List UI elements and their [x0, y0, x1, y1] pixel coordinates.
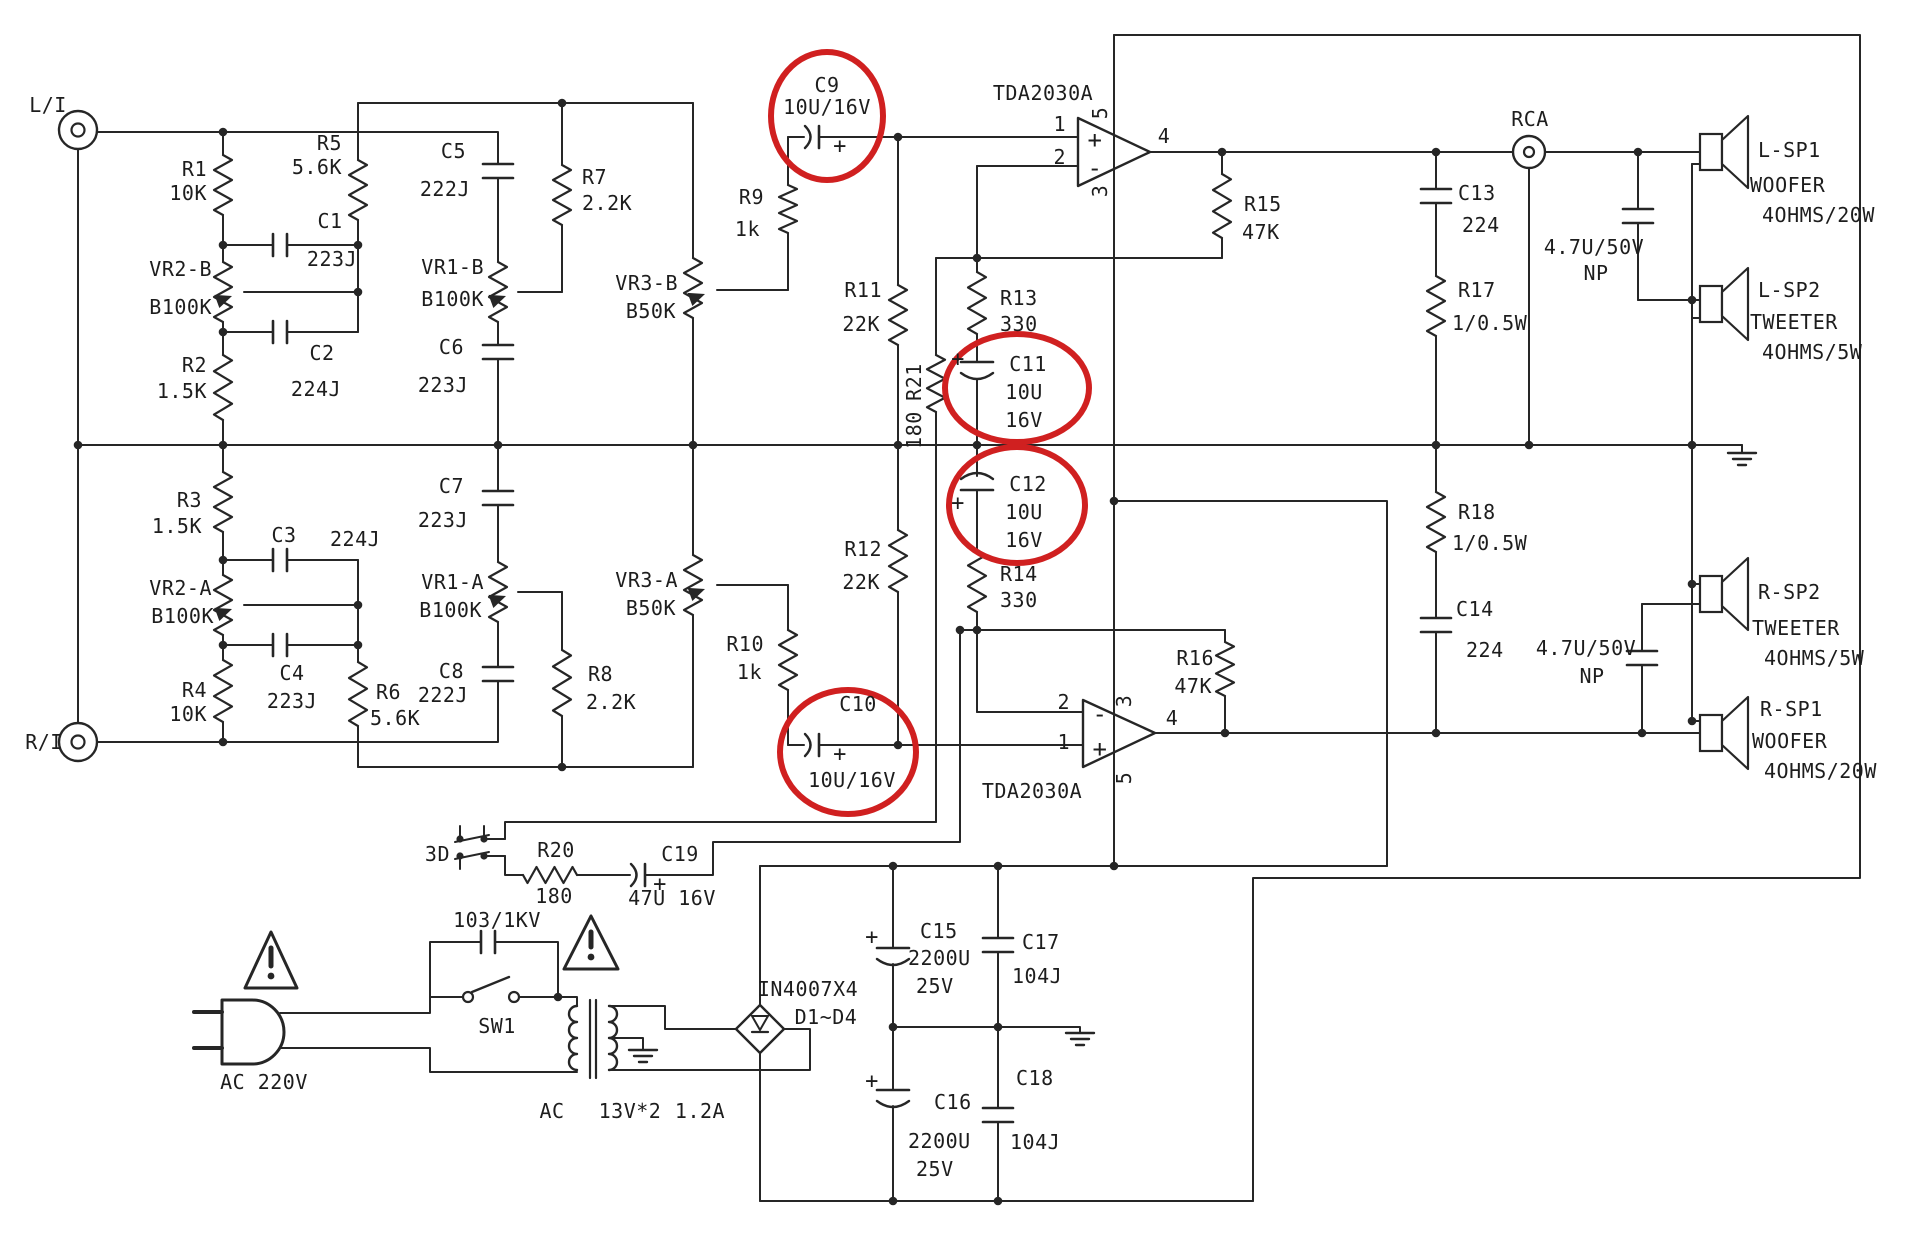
- label-vr2a: VR2-A: [149, 576, 212, 600]
- label-c15p: +: [865, 925, 879, 950]
- label-c2v: 224J: [291, 377, 341, 401]
- label-u2p5: 5: [1112, 772, 1136, 785]
- label-r8: R8: [588, 662, 613, 686]
- label-r2v: 1.5K: [157, 379, 207, 403]
- label-c9: C9: [814, 73, 839, 97]
- label-r18: R18: [1458, 500, 1496, 524]
- label-c10: C10: [839, 692, 877, 716]
- power-switch-sw1: [463, 977, 519, 1002]
- label-r1: R1: [182, 157, 207, 181]
- label-u2p3: 3: [1112, 695, 1136, 708]
- label-u2plus: +: [1093, 735, 1108, 763]
- label-u2p4: 4: [1166, 706, 1179, 730]
- label-c8v: 222J: [418, 683, 468, 707]
- label-r2: R2: [182, 353, 207, 377]
- label-vr1a: VR1-A: [421, 570, 484, 594]
- label-u1p4: 4: [1158, 124, 1171, 148]
- rca-output-jack: [1513, 136, 1545, 168]
- label-r20v: 180: [535, 884, 573, 908]
- label-r17: R17: [1458, 278, 1496, 302]
- label-c16: C16: [934, 1090, 972, 1114]
- label-c14: C14: [1456, 597, 1494, 621]
- right-input-jack: [59, 723, 97, 761]
- label-acs3: 1.2A: [675, 1099, 725, 1123]
- label-rsp1v: 4OHMS/20W: [1764, 759, 1877, 783]
- label-r14v: 330: [1000, 588, 1038, 612]
- label-c16v2: 25V: [916, 1157, 954, 1181]
- label-u2: TDA2030A: [982, 779, 1082, 803]
- label-r14: R14: [1000, 562, 1038, 586]
- label-u1minus: -: [1088, 154, 1103, 182]
- label-u1plus: +: [1088, 126, 1103, 154]
- label-u2minus: -: [1093, 700, 1108, 728]
- speaker-l-sp2-tweeter: [1700, 268, 1748, 340]
- warning-triangle-icon: [564, 916, 618, 969]
- label-vr2bv: B100K: [149, 295, 212, 319]
- label-c4v: 223J: [267, 689, 317, 713]
- label-u1p1: 1: [1053, 112, 1066, 136]
- label-r13v: 330: [1000, 312, 1038, 336]
- speaker-r-sp1-woofer: [1700, 697, 1748, 769]
- label-r4v: 10K: [169, 702, 207, 726]
- label-vr2av: B100K: [151, 604, 214, 628]
- label-c7v: 223J: [418, 508, 468, 532]
- label-acs2: 13V*2: [599, 1099, 662, 1123]
- label-c14v: 224: [1466, 638, 1504, 662]
- label-lsp2t: TWEETER: [1750, 310, 1838, 334]
- label-r12: R12: [844, 537, 882, 561]
- label-u2p2: 2: [1057, 690, 1070, 714]
- label-vr3a: VR3-A: [615, 568, 678, 592]
- label-c11v2: 16V: [1005, 408, 1043, 432]
- label-c11: C11: [1009, 352, 1047, 376]
- label-u1p3: 3: [1088, 185, 1112, 198]
- label-r4: R4: [182, 678, 207, 702]
- label-br: IN4007X4: [758, 977, 858, 1001]
- label-c11p: +: [951, 347, 965, 372]
- label-c3v: 224J: [330, 527, 380, 551]
- label-r8v: 2.2K: [586, 690, 636, 714]
- label-c10v: 10U/16V: [808, 768, 896, 792]
- label-c11v: 10U: [1005, 380, 1043, 404]
- label-rca: RCA: [1511, 107, 1549, 131]
- label-c10p: +: [833, 742, 847, 767]
- label-c9p: +: [833, 134, 847, 159]
- speaker-r-sp2-tweeter: [1700, 558, 1748, 630]
- label-r5: R5: [317, 131, 342, 155]
- label-c6: C6: [439, 335, 464, 359]
- label-u1p2: 2: [1053, 145, 1066, 169]
- label-c16p: +: [865, 1069, 879, 1094]
- label-r9: R9: [739, 185, 764, 209]
- label-vr1av: B100K: [419, 598, 482, 622]
- label-sw1: SW1: [478, 1014, 516, 1038]
- text-labels: L/IR/IR110KR55.6KC1223JVR2-BB100KC2224JR…: [25, 73, 1877, 1181]
- label-c13v: 224: [1462, 213, 1500, 237]
- label-c8: C8: [439, 659, 464, 683]
- label-np1v: NP: [1583, 261, 1608, 285]
- label-r17v: 1/0.5W: [1452, 311, 1528, 335]
- label-rsp2v: 4OHMS/5W: [1764, 646, 1865, 670]
- amplifier-schematic: L/IR/IR110KR55.6KC1223JVR2-BB100KC2224JR…: [0, 0, 1920, 1235]
- label-r5v: 5.6K: [292, 155, 342, 179]
- label-vr3bv: B50K: [626, 299, 676, 323]
- label-c5v: 222J: [420, 177, 470, 201]
- label-u1: TDA2030A: [993, 81, 1093, 105]
- label-lsp1v: 4OHMS/20W: [1762, 203, 1875, 227]
- label-rsp2t: TWEETER: [1752, 616, 1840, 640]
- label-vr3b: VR3-B: [615, 271, 678, 295]
- label-c15v2: 25V: [916, 974, 954, 998]
- label-c17v: 104J: [1012, 964, 1062, 988]
- label-c19: C19: [661, 842, 699, 866]
- label-c5: C5: [441, 139, 466, 163]
- label-np2v: NP: [1579, 664, 1604, 688]
- label-np1: 4.7U/50V: [1544, 235, 1644, 259]
- label-li: L/I: [29, 93, 67, 117]
- label-r7v: 2.2K: [582, 191, 632, 215]
- warning-triangle-icon: [245, 932, 297, 988]
- label-r7: R7: [582, 165, 607, 189]
- label-r6: R6: [376, 680, 401, 704]
- speaker-l-sp1-woofer: [1700, 116, 1748, 188]
- label-c9v: 10U/16V: [783, 95, 871, 119]
- label-rsp2: R-SP2: [1758, 580, 1821, 604]
- label-c13: C13: [1458, 181, 1496, 205]
- label-r15v: 47K: [1242, 220, 1280, 244]
- label-c12: C12: [1009, 472, 1047, 496]
- label-r10v: 1k: [737, 660, 762, 684]
- transformer-icon: [569, 1000, 617, 1078]
- label-r3v: 1.5K: [152, 514, 202, 538]
- label-r12v: 22K: [842, 570, 880, 594]
- label-c18: C18: [1016, 1066, 1054, 1090]
- label-cx: 103/1KV: [453, 908, 541, 932]
- label-lsp1: L-SP1: [1758, 138, 1821, 162]
- label-rsp1t: WOOFER: [1752, 729, 1828, 753]
- schematic-page: L/IR/IR110KR55.6KC1223JVR2-BB100KC2224JR…: [0, 0, 1920, 1235]
- label-r10: R10: [726, 632, 764, 656]
- label-c19p: +: [653, 872, 667, 897]
- label-r15: R15: [1244, 192, 1282, 216]
- label-r9v: 1k: [735, 217, 760, 241]
- label-r16v: 47K: [1174, 674, 1212, 698]
- label-u1p5: 5: [1088, 107, 1112, 120]
- label-vr1b: VR1-B: [421, 255, 484, 279]
- label-r21v: 180: [902, 411, 926, 449]
- label-lsp1t: WOOFER: [1750, 173, 1826, 197]
- label-c19v: 47U 16V: [628, 886, 716, 910]
- ac-plug-icon: [194, 1000, 284, 1064]
- label-np2: 4.7U/50V: [1536, 636, 1636, 660]
- label-r13: R13: [1000, 286, 1038, 310]
- label-c17: C17: [1022, 930, 1060, 954]
- label-vr1bv: B100K: [421, 287, 484, 311]
- label-c15v: 2200U: [908, 946, 971, 970]
- label-c6v: 223J: [418, 373, 468, 397]
- label-ac: AC 220V: [220, 1070, 308, 1094]
- label-c2: C2: [309, 341, 334, 365]
- label-u2p1: 1: [1057, 730, 1070, 754]
- label-vr2b: VR2-B: [149, 257, 212, 281]
- label-c12p: +: [951, 491, 965, 516]
- label-lsp2v: 4OHMS/5W: [1762, 340, 1863, 364]
- label-sw3d: 3D: [425, 842, 450, 866]
- bridge-rectifier-icon: [736, 1005, 784, 1053]
- label-c18v: 104J: [1010, 1130, 1060, 1154]
- label-c1v: 223J: [307, 247, 357, 271]
- label-ri: R/I: [25, 730, 63, 754]
- label-brv: D1~D4: [795, 1005, 858, 1029]
- label-rsp1: R-SP1: [1760, 697, 1823, 721]
- label-c7: C7: [439, 474, 464, 498]
- label-r21: R21: [902, 363, 926, 401]
- label-r16: R16: [1176, 646, 1214, 670]
- label-vr3av: B50K: [626, 596, 676, 620]
- label-c3: C3: [271, 523, 296, 547]
- label-r18v: 1/0.5W: [1452, 531, 1528, 555]
- label-r6v: 5.6K: [370, 706, 420, 730]
- label-r11v: 22K: [842, 312, 880, 336]
- label-c16v: 2200U: [908, 1129, 971, 1153]
- label-r3: R3: [177, 488, 202, 512]
- label-c12v: 10U: [1005, 500, 1043, 524]
- label-lsp2: L-SP2: [1758, 278, 1821, 302]
- label-r1v: 10K: [169, 181, 207, 205]
- label-r20: R20: [537, 838, 575, 862]
- label-c1: C1: [317, 209, 342, 233]
- label-c12v2: 16V: [1005, 528, 1043, 552]
- label-r11: R11: [844, 278, 882, 302]
- label-acs1: AC: [539, 1099, 564, 1123]
- label-c15: C15: [920, 919, 958, 943]
- wire-layer: [78, 35, 1860, 1201]
- label-c4: C4: [279, 661, 304, 685]
